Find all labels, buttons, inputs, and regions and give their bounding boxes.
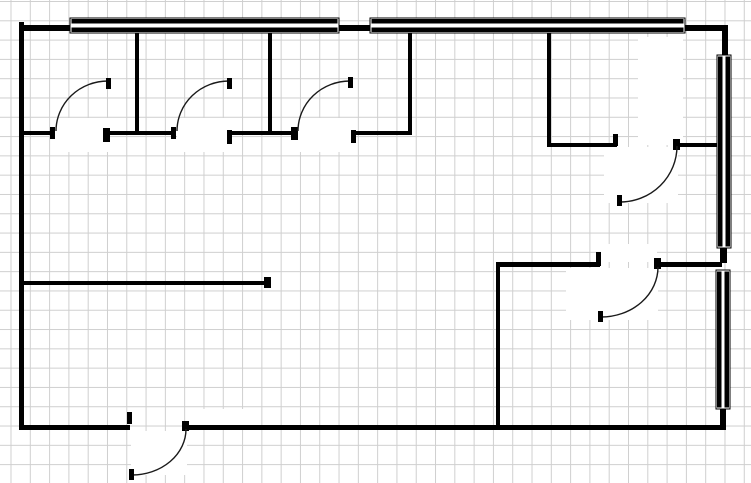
door-jamb (596, 252, 601, 266)
right-exterior-wall-upper[interactable] (722, 25, 728, 56)
door-jamb (613, 134, 618, 146)
office-wall-left[interactable] (547, 143, 617, 147)
room-wall-vertical[interactable] (496, 264, 500, 428)
door-jamb (291, 127, 298, 140)
bottom-exterior-wall-left[interactable] (19, 425, 130, 430)
door-jamb (227, 130, 232, 144)
corridor-wall-d[interactable] (352, 131, 412, 135)
door-jamb (264, 277, 271, 288)
corridor-wall-c[interactable] (228, 131, 297, 135)
door-5-leaf[interactable] (598, 311, 603, 322)
shape-fill-patch (187, 409, 249, 426)
shape-fill-patch (177, 118, 231, 152)
corridor-wall-a[interactable] (19, 131, 55, 135)
partition-4[interactable] (547, 31, 551, 147)
window-right-lower-bar (725, 272, 730, 408)
left-exterior-wall[interactable] (19, 22, 24, 430)
shape-fill-patch (298, 118, 356, 152)
door-2-leaf[interactable] (227, 78, 232, 89)
window-top-right-bar (372, 28, 684, 33)
partition-1[interactable] (135, 31, 139, 135)
shape-fill-patch (604, 147, 678, 203)
window-right-lower-bar (717, 272, 722, 408)
shape-fill-patch (55, 118, 109, 152)
door-1-leaf[interactable] (106, 78, 111, 89)
mid-partition[interactable] (19, 281, 269, 285)
door-jamb (103, 128, 110, 142)
bottom-exterior-wall-right[interactable] (186, 425, 725, 430)
door-jamb (351, 130, 356, 143)
door-entry-leaf[interactable] (129, 469, 134, 480)
room-wall-top-right[interactable] (658, 262, 722, 267)
window-top-left-bar (72, 28, 338, 33)
window-top-left-bar (72, 19, 338, 24)
shape-fill-patch (566, 268, 658, 320)
shape-fill-patch (601, 244, 657, 262)
room-wall-top-left[interactable] (496, 262, 600, 267)
door-jamb (127, 412, 132, 424)
window-top-right-bar (372, 19, 684, 24)
door-3-leaf[interactable] (348, 77, 353, 88)
door-jamb (171, 127, 176, 139)
window-right-upper-bar (718, 57, 723, 247)
floor-plan-svg (0, 0, 751, 483)
partition-3[interactable] (408, 31, 412, 135)
door-4-leaf[interactable] (617, 195, 622, 206)
right-exterior-wall-middle[interactable] (720, 247, 727, 263)
office-wall-right[interactable] (677, 143, 720, 147)
drawing-canvas[interactable] (0, 0, 751, 483)
window-right-upper-bar (726, 57, 731, 247)
door-jamb (50, 127, 55, 139)
shape-fill-patch (638, 37, 683, 145)
corridor-wall-b[interactable] (104, 131, 176, 135)
partition-2[interactable] (268, 31, 272, 135)
